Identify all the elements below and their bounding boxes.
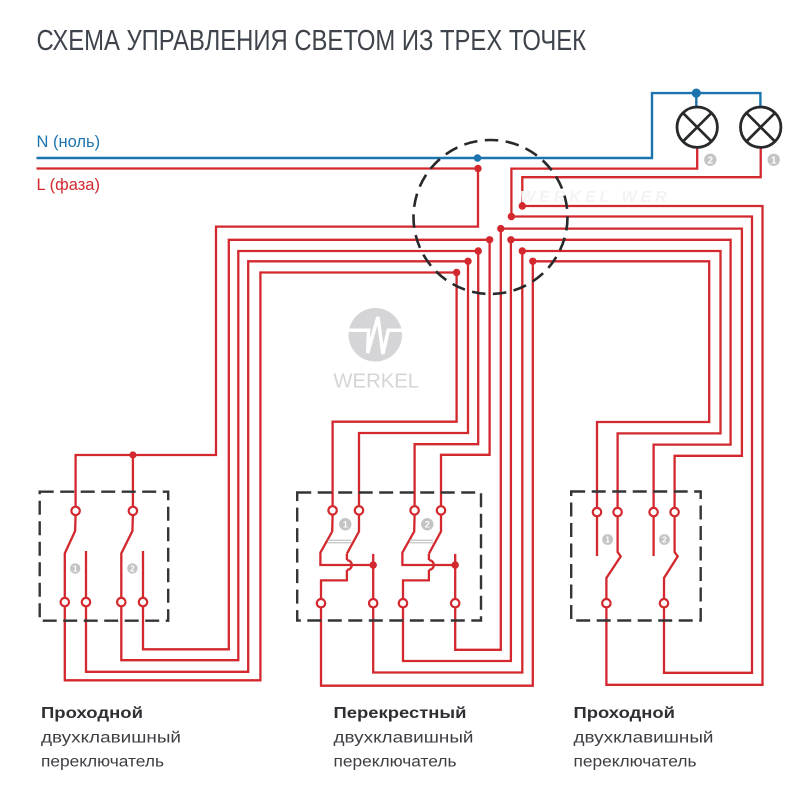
svg-text:L (фаза): L (фаза)	[37, 176, 100, 194]
svg-text:двухклавишный: двухклавишный	[41, 730, 181, 747]
svg-text:WERKEL: WERKEL	[333, 371, 419, 393]
svg-text:переключатель: переключатель	[41, 754, 164, 771]
svg-text:двухклавишный: двухклавишный	[574, 730, 714, 747]
svg-text:2: 2	[662, 535, 667, 544]
svg-text:переключатель: переключатель	[334, 754, 457, 771]
svg-text:2: 2	[708, 155, 714, 166]
svg-text:2: 2	[130, 564, 135, 573]
svg-text:Перекрестный: Перекрестный	[334, 705, 467, 722]
svg-text:двухклавишный: двухклавишный	[334, 730, 474, 747]
svg-text:Проходной: Проходной	[574, 705, 676, 722]
svg-text:Проходной: Проходной	[41, 705, 143, 722]
svg-text:1: 1	[605, 535, 610, 544]
svg-text:2: 2	[425, 519, 430, 529]
svg-text:переключатель: переключатель	[574, 754, 697, 771]
svg-text:1: 1	[771, 155, 777, 166]
svg-text:WERKEL WER: WERKEL WER	[520, 189, 671, 206]
svg-text:N (ноль): N (ноль)	[37, 133, 101, 151]
svg-text:СХЕМА УПРАВЛЕНИЯ СВЕТОМ ИЗ ТРЕ: СХЕМА УПРАВЛЕНИЯ СВЕТОМ ИЗ ТРЕХ ТОЧЕК	[37, 25, 587, 57]
svg-text:1: 1	[343, 519, 348, 529]
svg-text:1: 1	[73, 564, 78, 573]
